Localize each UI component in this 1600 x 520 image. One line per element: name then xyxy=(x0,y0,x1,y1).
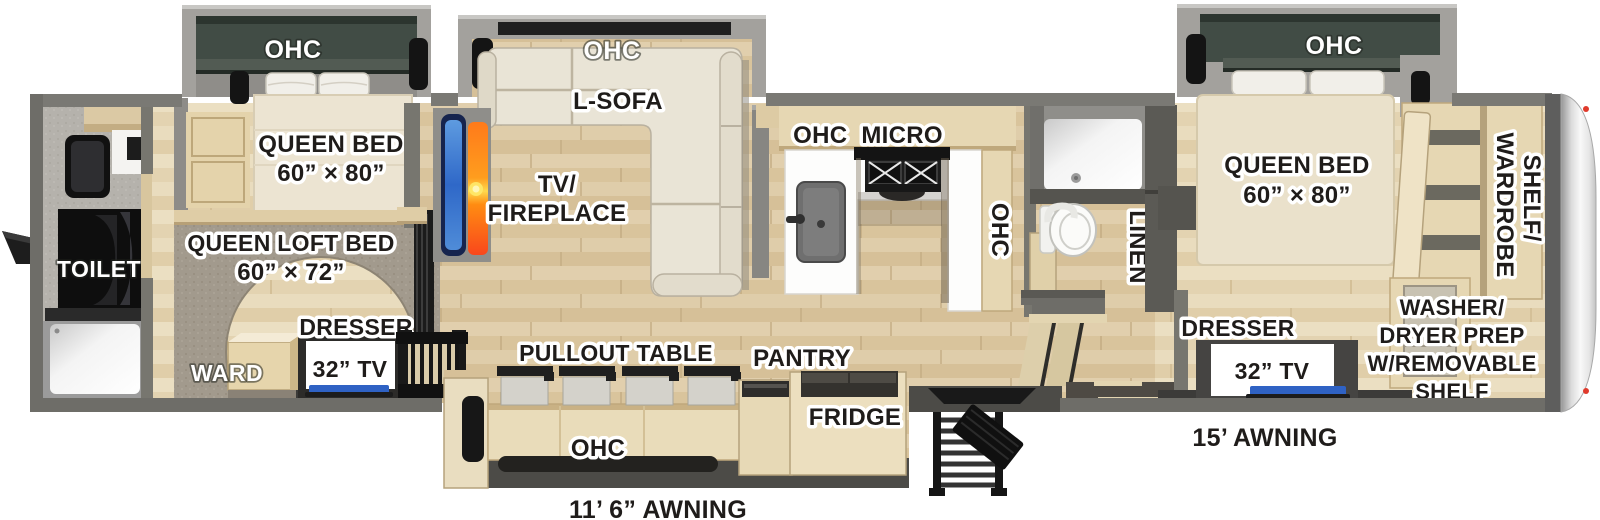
svg-text:L-SOFA: L-SOFA xyxy=(573,88,663,115)
svg-text:QUEEN BED: QUEEN BED xyxy=(1224,152,1369,179)
svg-text:TOILET: TOILET xyxy=(57,256,141,282)
svg-text:15’ AWNING: 15’ AWNING xyxy=(1192,424,1337,452)
svg-text:PULLOUT TABLE: PULLOUT TABLE xyxy=(519,340,713,366)
svg-text:60” × 72”: 60” × 72” xyxy=(237,259,344,286)
svg-text:W/REMOVABLE: W/REMOVABLE xyxy=(1367,351,1536,376)
svg-text:WARD: WARD xyxy=(191,360,263,386)
svg-text:OHC: OHC xyxy=(583,37,640,65)
svg-text:SHELF/: SHELF/ xyxy=(1518,154,1545,241)
svg-text:WARDROBE: WARDROBE xyxy=(1491,132,1518,277)
svg-text:OHC: OHC xyxy=(264,36,321,64)
svg-text:OHC: OHC xyxy=(986,203,1013,257)
svg-text:OHC: OHC xyxy=(571,435,625,462)
svg-text:11’ 6” AWNING: 11’ 6” AWNING xyxy=(569,496,747,520)
svg-text:FIREPLACE: FIREPLACE xyxy=(488,200,627,227)
svg-text:60” × 80”: 60” × 80” xyxy=(1243,182,1350,209)
svg-text:QUEEN LOFT BED: QUEEN LOFT BED xyxy=(187,230,394,256)
svg-text:QUEEN BED: QUEEN BED xyxy=(258,131,403,158)
svg-text:TV/: TV/ xyxy=(538,171,576,198)
svg-text:32” TV: 32” TV xyxy=(1235,358,1310,384)
svg-text:FRIDGE: FRIDGE xyxy=(809,404,901,431)
svg-text:DRYER PREP: DRYER PREP xyxy=(1379,323,1524,348)
svg-text:32” TV: 32” TV xyxy=(313,356,388,382)
svg-text:DRESSER: DRESSER xyxy=(299,314,412,340)
svg-text:PANTRY: PANTRY xyxy=(753,345,851,372)
svg-text:OHC: OHC xyxy=(1305,32,1362,60)
svg-text:WASHER/: WASHER/ xyxy=(1400,295,1505,320)
svg-text:OHC MICRO: OHC MICRO xyxy=(793,122,943,149)
svg-text:60” × 80”: 60” × 80” xyxy=(277,160,384,187)
svg-text:DRESSER: DRESSER xyxy=(1181,315,1294,341)
